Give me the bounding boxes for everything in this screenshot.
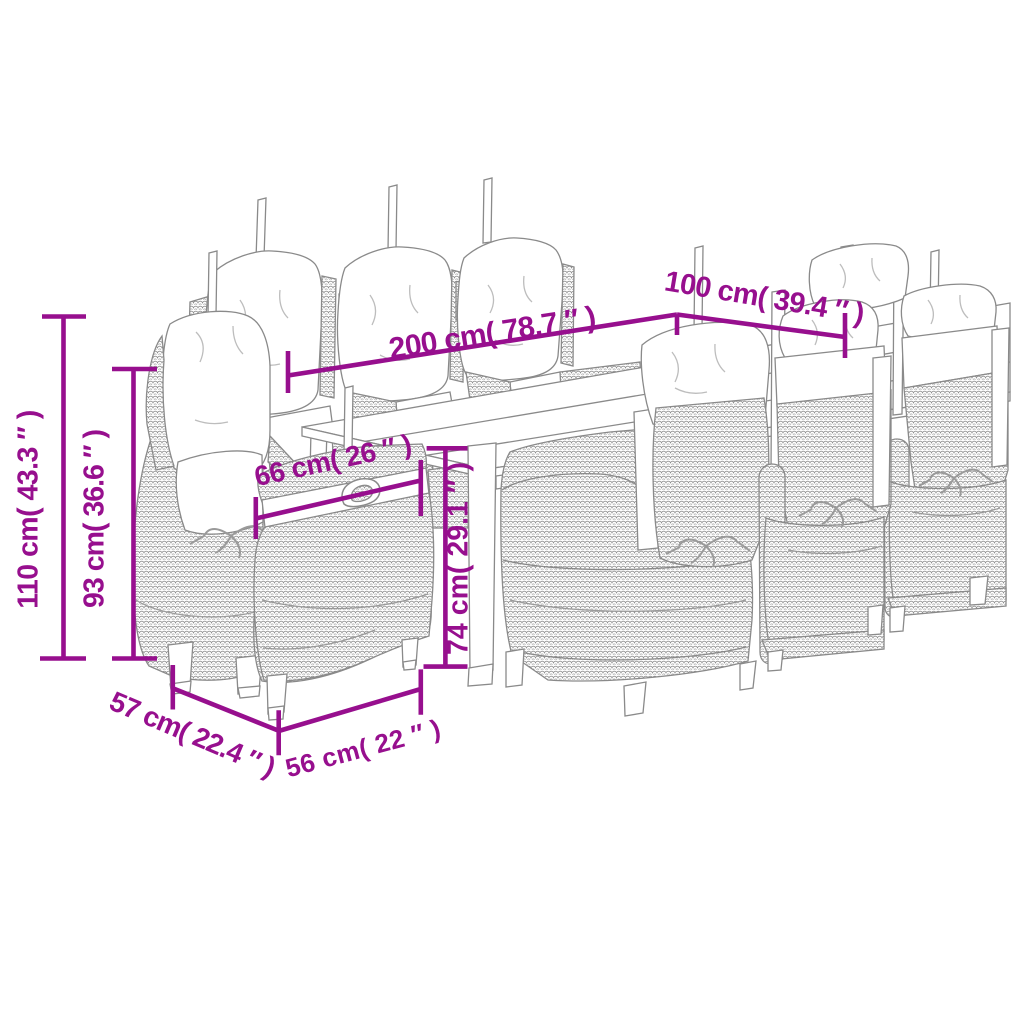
- svg-text:57 cm( 22.4 ″ ): 57 cm( 22.4 ″ ): [105, 685, 280, 783]
- svg-text:110 cm( 43.3 ″ ): 110 cm( 43.3 ″ ): [13, 410, 45, 609]
- svg-text:74 cm( 29.1 ″ ): 74 cm( 29.1 ″ ): [443, 462, 475, 655]
- svg-text:93 cm( 36.6 ″ ): 93 cm( 36.6 ″ ): [79, 429, 111, 608]
